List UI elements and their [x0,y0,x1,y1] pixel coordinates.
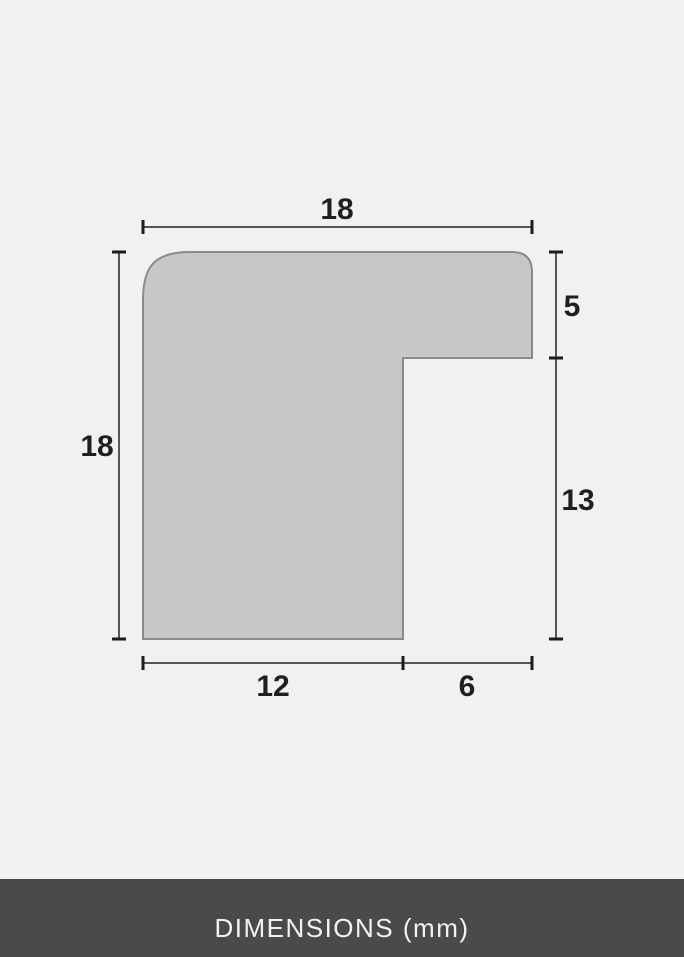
dimension-label-top: 18 [320,193,353,226]
dimension-bottom-widths: 12 6 [143,656,532,703]
dimension-right-heights: 5 13 [549,252,595,639]
dimension-top-width: 18 [143,193,532,234]
dimension-label-right-upper: 5 [564,290,581,323]
dimension-label-right-lower: 13 [561,484,594,517]
dimension-label-bottom-right: 6 [459,670,476,703]
frame-profile-shape [143,252,532,639]
dimension-label-left: 18 [80,430,113,463]
dimension-label-bottom-left: 12 [256,670,289,703]
dimensions-diagram-screen: 18 18 5 13 [0,0,684,957]
profile-diagram: 18 18 5 13 [0,0,684,879]
profile-diagram-canvas: 18 18 5 13 [0,0,684,879]
footer-bar: DIMENSIONS (mm) [0,879,684,957]
dimension-left-height: 18 [80,252,126,639]
footer-title: DIMENSIONS (mm) [214,913,469,944]
